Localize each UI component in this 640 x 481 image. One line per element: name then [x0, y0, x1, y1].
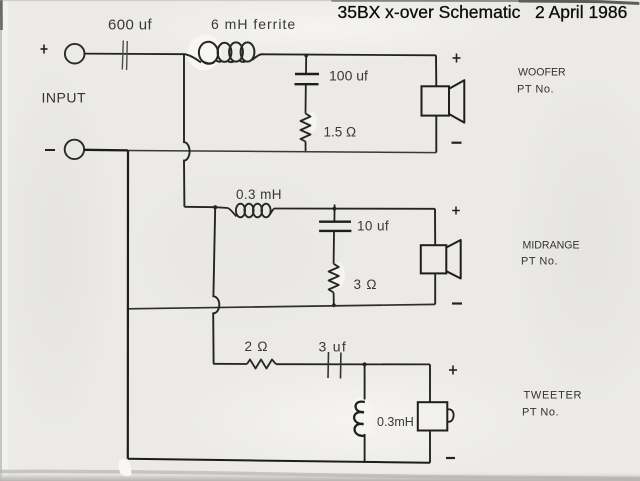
svg-text:MIDRANGE: MIDRANGE: [523, 240, 580, 252]
svg-text:100 uf: 100 uf: [329, 68, 368, 84]
svg-text:6 mH ferrite: 6 mH ferrite: [211, 16, 296, 32]
svg-text:PT No.: PT No.: [517, 84, 554, 96]
svg-text:3 uf: 3 uf: [319, 339, 348, 355]
svg-text:1.5 Ω: 1.5 Ω: [324, 125, 357, 140]
svg-text:0.3 mH: 0.3 mH: [236, 187, 282, 202]
svg-text:3 Ω: 3 Ω: [354, 277, 378, 292]
svg-text:PT No.: PT No.: [522, 407, 559, 419]
svg-text:INPUT: INPUT: [42, 90, 87, 106]
svg-text:600 uf: 600 uf: [108, 17, 153, 34]
svg-text:10 uf: 10 uf: [357, 219, 389, 234]
svg-text:35BX x-over Schematic 2 Apri: 35BX x-over Schematic 2 April 1986: [338, 2, 628, 22]
svg-text:PT No.: PT No.: [521, 256, 558, 268]
svg-text:0.3mH: 0.3mH: [377, 415, 414, 429]
svg-text:WOOFER: WOOFER: [518, 67, 566, 79]
svg-text:2 Ω: 2 Ω: [245, 339, 269, 354]
svg-text:TWEETER: TWEETER: [524, 390, 583, 402]
